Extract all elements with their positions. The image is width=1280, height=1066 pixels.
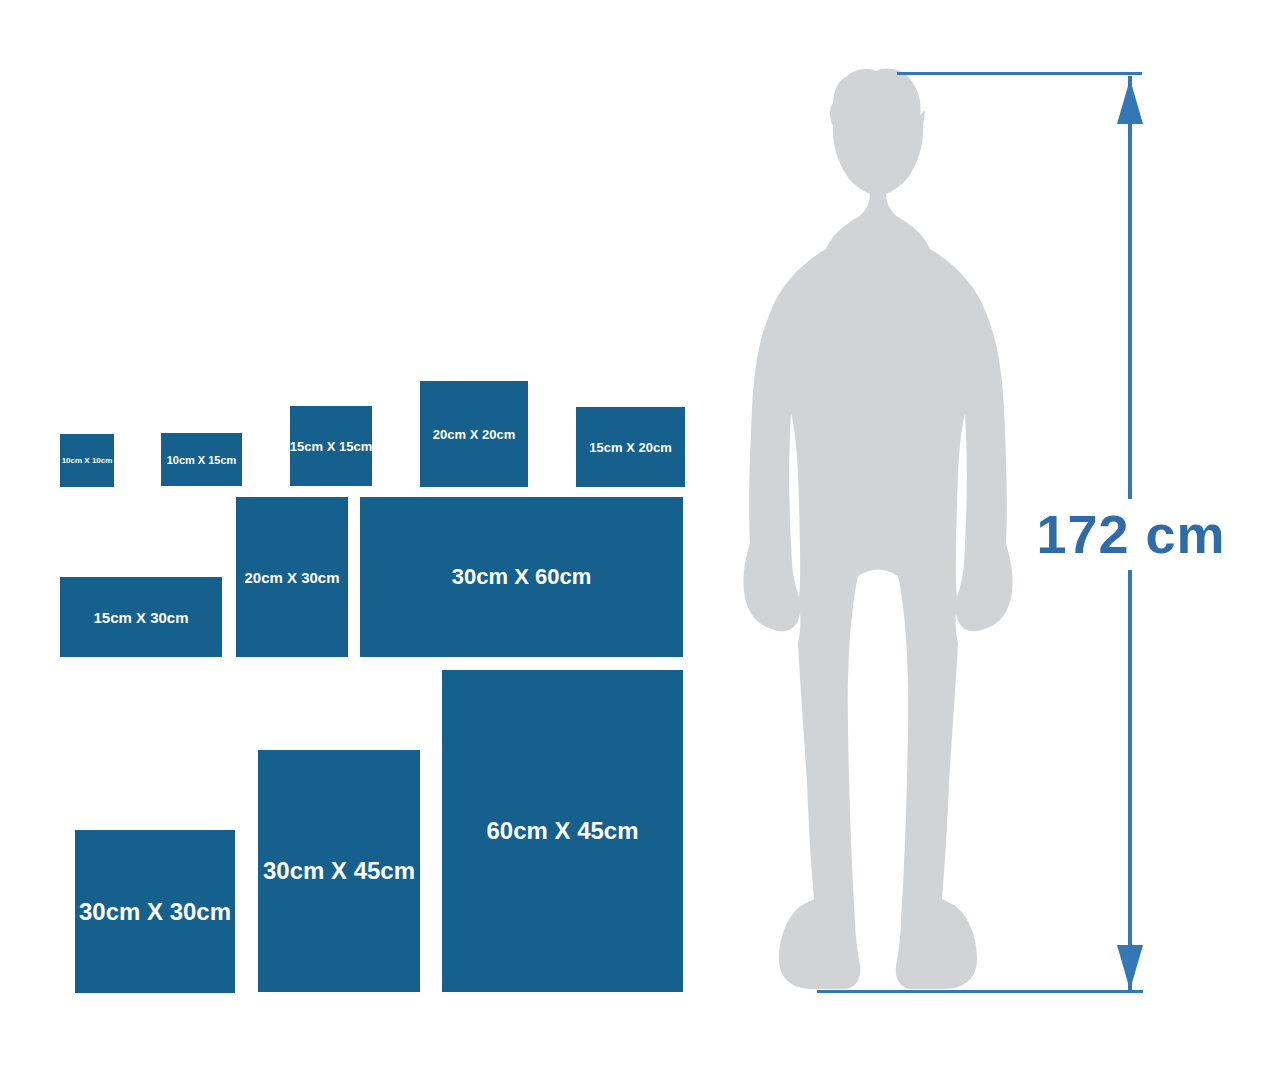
size-box-20x20: 20cm X 20cm [420,381,528,487]
size-box-15x30: 15cm X 30cm [60,577,222,657]
arrow-up-icon [1117,79,1143,124]
size-box-10x15: 10cm X 15cm [161,433,242,486]
size-box-15x20: 15cm X 20cm [576,407,685,487]
person-silhouette-icon [728,63,1030,993]
size-comparison-diagram: 10cm X 10cm 10cm X 15cm 15cm X 15cm 20cm… [0,0,1280,1066]
size-box-20x30: 20cm X 30cm [236,497,348,657]
measure-bottom-line [817,990,1143,993]
size-box-15x15: 15cm X 15cm [290,406,372,486]
size-box-30x45: 30cm X 45cm [258,750,420,992]
size-box-60x45: 60cm X 45cm [442,670,683,992]
size-box-30x60: 30cm X 60cm [360,497,683,657]
person-height-label: 172 cm [1018,499,1244,570]
size-box-30x30: 30cm X 30cm [75,830,235,993]
size-box-10x10: 10cm X 10cm [60,434,114,487]
arrow-down-icon [1117,945,1143,990]
measure-top-line [897,72,1142,75]
